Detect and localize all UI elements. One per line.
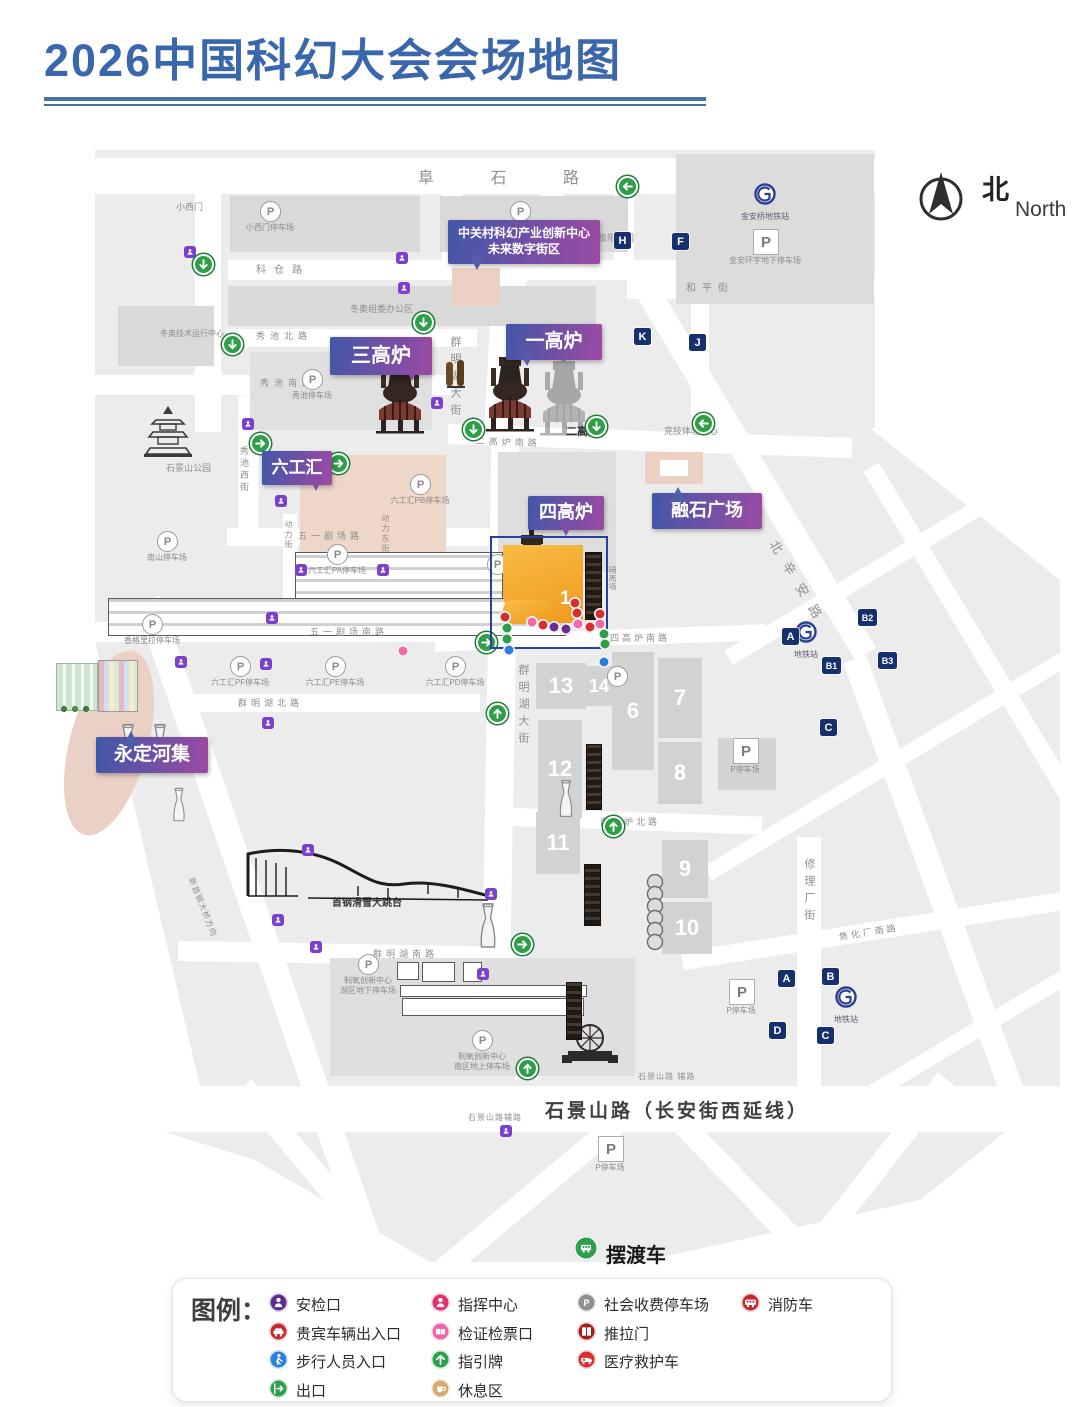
venue-callout: 四高炉 bbox=[528, 496, 604, 530]
road-label: 四高炉南路 bbox=[610, 631, 670, 644]
venue-map-page: 2026中国科幻大会会场地图 北 North 阜 石 路科仓路和平 bbox=[0, 0, 1080, 1407]
cooling-tower-3 bbox=[170, 783, 188, 832]
parking-label: P停车场 bbox=[730, 765, 759, 775]
security-check-icon bbox=[272, 914, 284, 926]
guide-sign-icon bbox=[512, 934, 533, 955]
legend-label: 指挥中心 bbox=[458, 1294, 518, 1315]
north-label-en: North bbox=[1015, 198, 1066, 222]
guide-sign-icon bbox=[603, 816, 624, 837]
guide-sign-icon bbox=[463, 419, 484, 440]
legend-title: 图例： bbox=[191, 1291, 266, 1327]
letter-marker-A: A bbox=[782, 628, 799, 645]
legend-icon-ticket bbox=[431, 1322, 450, 1341]
road-label: 五一剧场路 bbox=[298, 529, 363, 542]
security-check-icon bbox=[431, 397, 443, 409]
road bbox=[180, 694, 480, 712]
legend-icon-ambulance bbox=[577, 1350, 596, 1369]
legend-icon-rest bbox=[431, 1379, 450, 1398]
shuttle-bus-icon bbox=[574, 1236, 598, 1260]
parking-icon: P bbox=[302, 369, 323, 390]
parking-icon: P bbox=[230, 656, 251, 677]
letter-marker-F: F bbox=[672, 233, 689, 250]
letter-marker-B: B bbox=[822, 968, 839, 985]
legend-label: 检证检票口 bbox=[458, 1323, 533, 1344]
legend-label: 推拉门 bbox=[604, 1323, 649, 1344]
north-label-zh: 北 bbox=[982, 168, 1009, 207]
letter-marker-B2: B2 bbox=[858, 609, 877, 626]
building-long-shed-1 bbox=[400, 985, 587, 997]
yongding-market-building-b bbox=[98, 660, 138, 712]
guide-sign-icon bbox=[517, 1058, 538, 1079]
parking-label: P停车场 bbox=[595, 1163, 624, 1173]
legend-icon-walker bbox=[269, 1350, 288, 1369]
guide-sign-icon bbox=[487, 703, 508, 724]
zone-marker-blue bbox=[598, 656, 610, 668]
road-label: 群明湖南路 bbox=[373, 947, 438, 960]
parking-label: 六工汇PE停车场 bbox=[306, 678, 365, 688]
security-check-icon bbox=[262, 717, 274, 729]
legend-icon-firetruck bbox=[741, 1293, 760, 1312]
security-check-icon bbox=[396, 252, 408, 264]
road-label: 动力街 bbox=[283, 520, 294, 550]
legend-panel: 图例： 安检口贵宾车辆出入口步行人员入口出口指挥中心检证检票口指引牌休息区P社会… bbox=[172, 1278, 892, 1402]
security-check-icon bbox=[477, 968, 489, 980]
legend-label: 指引牌 bbox=[458, 1351, 503, 1372]
parking-box-icon: P bbox=[729, 979, 755, 1005]
legend-label: 安检口 bbox=[296, 1294, 341, 1315]
title-underline bbox=[44, 97, 706, 101]
letter-marker-H: H bbox=[614, 232, 631, 249]
legend-icon-door bbox=[577, 1322, 596, 1341]
security-check-icon bbox=[184, 246, 196, 258]
zone-number: 1 bbox=[560, 588, 571, 610]
security-check-icon bbox=[302, 844, 314, 856]
map-block-13: 13 bbox=[536, 663, 586, 709]
road-label: 修理厂街 bbox=[801, 858, 817, 926]
parking-icon: P bbox=[325, 656, 346, 677]
parking-box-icon: P bbox=[733, 738, 759, 764]
industrial-tower-3 bbox=[566, 982, 582, 1040]
parking-icon: P bbox=[142, 614, 163, 635]
letter-marker-B3: B3 bbox=[878, 652, 897, 669]
map-block-10: 10 bbox=[662, 902, 712, 954]
metro-station: 地铁站 bbox=[834, 985, 858, 1025]
parking-label: 小西门停车场 bbox=[246, 223, 294, 233]
letter-marker-K: K bbox=[634, 328, 651, 345]
ski-jump-illustration bbox=[238, 842, 503, 907]
legend-icon-arrow bbox=[431, 1350, 450, 1369]
guide-sign-icon bbox=[222, 334, 243, 355]
parking-icon: P bbox=[445, 656, 466, 677]
legend-icon-person bbox=[269, 1293, 288, 1312]
venue-callout: 融石广场 bbox=[652, 493, 762, 529]
parking-label: 制氧创新中心湖区地下停车场 bbox=[340, 976, 396, 997]
area-label: 小西门 bbox=[176, 200, 203, 213]
security-check-icon bbox=[175, 656, 187, 668]
parking-label: 香格里拉停车场 bbox=[124, 636, 180, 646]
legend-label: 消防车 bbox=[768, 1294, 813, 1315]
silo-stack bbox=[646, 874, 664, 961]
callout-tail bbox=[558, 521, 574, 544]
road-label: 群明湖大街 bbox=[515, 664, 531, 749]
legend-icon-exit bbox=[269, 1379, 288, 1398]
parking-label: 六工汇PD停车场 bbox=[425, 678, 484, 688]
parking-label: P停车场 bbox=[726, 1006, 755, 1016]
security-check-icon bbox=[260, 658, 272, 670]
map-block-9: 9 bbox=[662, 840, 708, 898]
zone-marker-green bbox=[599, 638, 611, 650]
guide-sign-icon bbox=[617, 176, 638, 197]
road-label: 群明湖北路 bbox=[238, 696, 303, 709]
legend-label: 步行人员入口 bbox=[296, 1351, 386, 1372]
road-label: 五一剧场南路 bbox=[310, 625, 388, 638]
venue-callout: 中关村科幻产业创新中心未来数字街区 bbox=[448, 220, 600, 264]
letter-marker-B1: B1 bbox=[822, 657, 841, 674]
security-check-icon bbox=[275, 495, 287, 507]
road-label: 科仓路 bbox=[256, 261, 310, 276]
pagoda-illustration bbox=[140, 404, 196, 465]
legend-label: 出口 bbox=[296, 1380, 326, 1401]
building-industrial-hall-1 bbox=[295, 552, 503, 604]
road-label: 石景山路辅路 bbox=[468, 1112, 522, 1123]
building-long-shed-2 bbox=[402, 998, 584, 1016]
page-title: 2026中国科幻大会会场地图 bbox=[44, 24, 622, 89]
building-rongshi-courtyard bbox=[660, 460, 688, 476]
legend-label: 社会收费停车场 bbox=[604, 1294, 709, 1315]
zone-marker-red bbox=[571, 607, 583, 619]
road-label: 阜 石 路 bbox=[418, 164, 605, 188]
security-check-icon bbox=[500, 1125, 512, 1137]
parking-icon: P bbox=[607, 666, 628, 687]
road-label: 和平街 bbox=[686, 279, 734, 294]
road-label: 秀池西街 bbox=[238, 446, 251, 494]
road-label: 石景山路（长安街西延线） bbox=[545, 1096, 809, 1123]
guide-sign-icon bbox=[693, 413, 714, 434]
area-label: 冬奥组委办公区 bbox=[350, 302, 413, 315]
security-check-icon bbox=[295, 564, 307, 576]
letter-marker-D: D bbox=[769, 1022, 786, 1039]
parking-box-icon: P bbox=[753, 229, 779, 255]
guide-sign-icon bbox=[413, 312, 434, 333]
guide-sign-icon bbox=[586, 416, 607, 437]
compass-icon bbox=[912, 168, 970, 231]
road-label: 动力东街 bbox=[380, 514, 391, 554]
venue-callout: 三高炉 bbox=[330, 337, 432, 375]
area-label: 冬奥技术运行中心 bbox=[160, 328, 224, 339]
cooling-tower-5 bbox=[556, 780, 576, 823]
letter-marker-A: A bbox=[778, 970, 795, 987]
parking-icon: P bbox=[157, 531, 178, 552]
venue-callout: 永定河集 bbox=[96, 737, 208, 773]
industrial-tower-1 bbox=[586, 744, 602, 810]
callout-tail bbox=[469, 255, 485, 278]
legend-icon-car bbox=[269, 1322, 288, 1341]
zone-marker-blue bbox=[503, 644, 515, 656]
road bbox=[843, 655, 1026, 1105]
parking-icon: P bbox=[410, 474, 431, 495]
legend-label: 贵宾车辆出入口 bbox=[296, 1323, 401, 1344]
metro-station: 金安桥地铁站 bbox=[741, 182, 789, 222]
parking-box-icon: P bbox=[598, 1136, 624, 1162]
zone-marker-purple bbox=[548, 621, 560, 633]
legend-icon-person bbox=[431, 1293, 450, 1312]
title-underline-thin bbox=[44, 104, 706, 106]
callout-tail bbox=[519, 351, 535, 374]
parking-icon: P bbox=[472, 1030, 493, 1051]
callout-tail bbox=[123, 723, 139, 746]
road-label: 石景山路 辅路 bbox=[638, 1071, 695, 1082]
security-check-icon bbox=[377, 564, 389, 576]
zone-marker-pink bbox=[572, 618, 584, 630]
road-label: 新首钢大桥方向 bbox=[186, 876, 220, 939]
parking-label: 六工汇PF停车场 bbox=[211, 678, 269, 688]
road bbox=[863, 463, 1080, 918]
shuttle-label: 摆渡车 bbox=[606, 1239, 666, 1268]
security-check-icon bbox=[310, 941, 322, 953]
callout-tail bbox=[404, 366, 420, 389]
building-small-house-2 bbox=[422, 962, 455, 982]
area-label: 隔离墙 bbox=[607, 566, 618, 590]
letter-marker-C: C bbox=[817, 1027, 834, 1044]
callout-tail bbox=[670, 479, 686, 502]
guide-sign-icon bbox=[193, 254, 214, 275]
parking-label: 金安环宇地下停车场 bbox=[729, 256, 801, 266]
map-block-8: 8 bbox=[658, 742, 702, 804]
parking-label: 六工汇PB停车场 bbox=[391, 496, 450, 506]
parking-label: 秀池停车场 bbox=[292, 391, 332, 401]
industrial-tower-2 bbox=[584, 864, 601, 926]
legend-label: 休息区 bbox=[458, 1380, 503, 1401]
parking-icon: P bbox=[327, 544, 348, 565]
road-label: 秀池北路 bbox=[256, 329, 312, 342]
hot-stove-silos bbox=[444, 358, 466, 397]
svg-text:P: P bbox=[583, 1298, 589, 1308]
map-block-7: 7 bbox=[658, 658, 702, 738]
zone-marker-pink bbox=[397, 645, 409, 657]
parking-icon: P bbox=[260, 201, 281, 222]
security-check-icon bbox=[398, 282, 410, 294]
yongding-bushes bbox=[58, 704, 92, 714]
north-indicator: 北 North bbox=[912, 168, 1066, 231]
venue-callout: 六工汇 bbox=[262, 451, 332, 485]
security-check-icon bbox=[242, 418, 254, 430]
letter-marker-C: C bbox=[820, 719, 837, 736]
parking-label: 六工汇PA停车场 bbox=[308, 566, 366, 576]
legend-label: 医疗救护车 bbox=[604, 1351, 679, 1372]
parking-label: 南山停车场 bbox=[147, 553, 187, 563]
legend-icon-parking: P bbox=[577, 1293, 596, 1312]
venue-callout: 一高炉 bbox=[506, 324, 602, 360]
security-check-icon bbox=[266, 612, 278, 624]
parking-icon: P bbox=[358, 954, 379, 975]
zone-marker-purple bbox=[560, 623, 572, 635]
callout-tail bbox=[308, 476, 324, 499]
building-small-house-1 bbox=[397, 962, 419, 980]
letter-marker-J: J bbox=[689, 334, 706, 351]
parking-icon: P bbox=[510, 201, 531, 222]
cooling-tower-4 bbox=[476, 903, 500, 954]
parking-label: 制氧创新中心南区地上停车场 bbox=[454, 1052, 510, 1073]
security-check-icon bbox=[485, 888, 497, 900]
